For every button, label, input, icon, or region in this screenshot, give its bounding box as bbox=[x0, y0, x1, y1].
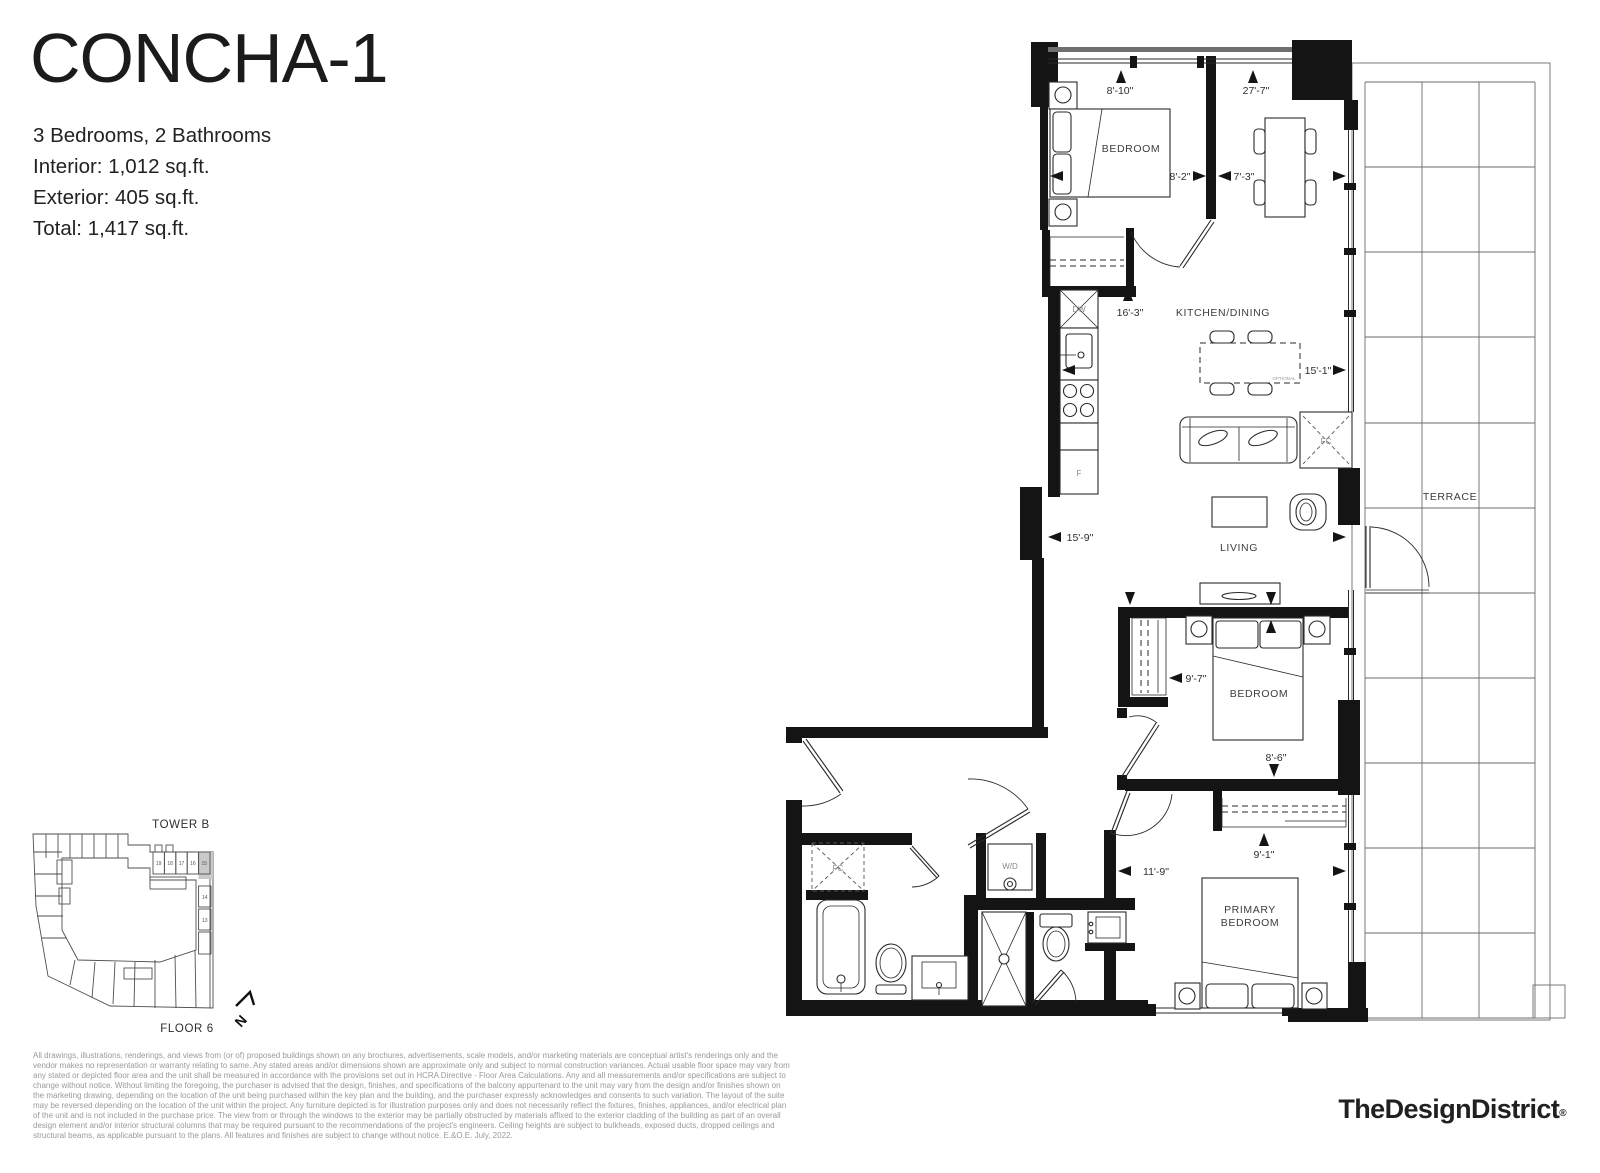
keyplan-building bbox=[33, 834, 213, 1008]
unit-19: 19 bbox=[156, 861, 162, 867]
spec-bed-bath: 3 Bedrooms, 2 Bathrooms bbox=[33, 120, 271, 151]
north-label: N bbox=[231, 1012, 250, 1030]
fc-living-label: FC bbox=[1321, 437, 1332, 446]
kitchen-dining-label: KITCHEN/DINING bbox=[1176, 307, 1270, 319]
primary-bedroom-label-2: BEDROOM bbox=[1221, 917, 1279, 929]
living-furniture: FC bbox=[1180, 412, 1352, 604]
terrace-label: TERRACE bbox=[1423, 491, 1477, 503]
unit-16: 16 bbox=[190, 861, 196, 867]
brand-logo: TheDesignDistrict® bbox=[1338, 1094, 1566, 1125]
living-label: LIVING bbox=[1220, 542, 1258, 554]
floorplan-page: CONCHA-1 3 Bedrooms, 2 Bathrooms Interio… bbox=[0, 0, 1600, 1173]
spec-exterior: Exterior: 405 sq.ft. bbox=[33, 182, 271, 213]
dim-living-w: 15'-9" bbox=[1067, 532, 1094, 544]
washer-dryer-label: W/D bbox=[1002, 862, 1018, 871]
dining-table bbox=[1254, 118, 1316, 217]
optional-table: OPTIONAL bbox=[1200, 331, 1300, 395]
dim-bedroom-top-w: 8'-10" bbox=[1107, 85, 1134, 97]
unit-14: 14 bbox=[202, 895, 208, 901]
bedroom-mid-furniture bbox=[1132, 616, 1330, 740]
dim-primary-w: 11'-9" bbox=[1143, 866, 1169, 878]
bedroom-top-label: BEDROOM bbox=[1102, 143, 1160, 155]
keyplan-units: 19 18 17 16 15 14 13 bbox=[153, 852, 213, 954]
terrace: TERRACE bbox=[1352, 63, 1565, 1020]
fridge-label: F bbox=[1077, 469, 1082, 478]
dim-bedroom-mid-d: 8'-6" bbox=[1266, 752, 1287, 764]
spec-interior: Interior: 1,012 sq.ft. bbox=[33, 151, 271, 182]
floor-plan: TERRACE bbox=[770, 20, 1570, 1030]
bedroom-top-furniture bbox=[1049, 82, 1170, 286]
bedroom-mid-label: BEDROOM bbox=[1230, 688, 1288, 700]
dim-bedroom-mid-w: 9'-7" bbox=[1186, 673, 1207, 685]
unit-17: 17 bbox=[179, 861, 185, 867]
spec-total: Total: 1,417 sq.ft. bbox=[33, 213, 271, 244]
primary-bedroom-label-1: PRIMARY bbox=[1224, 904, 1276, 916]
north-arrow-icon: N bbox=[231, 992, 254, 1030]
unit-15: 15 bbox=[202, 861, 208, 867]
legal-disclaimer: All drawings, illustrations, renderings,… bbox=[33, 1051, 790, 1141]
unit-18: 18 bbox=[167, 861, 173, 867]
dim-bedroom-top-d: 8'-2" bbox=[1170, 171, 1191, 183]
unit-title: CONCHA-1 bbox=[30, 18, 388, 98]
registered-mark: ® bbox=[1559, 1108, 1566, 1119]
dim-dining-w: 7'-3" bbox=[1234, 171, 1255, 183]
dishwasher-label: DW bbox=[1072, 305, 1086, 314]
unit-13: 13 bbox=[202, 918, 208, 924]
unit-specs: 3 Bedrooms, 2 Bathrooms Interior: 1,012 … bbox=[33, 120, 271, 244]
dim-kitchen-dining-w: 15'-1" bbox=[1305, 365, 1332, 377]
key-plan: TOWER B 19 18 17 16 15 bbox=[20, 800, 280, 1045]
fc-hall-label: FC bbox=[833, 864, 844, 873]
tower-label: TOWER B bbox=[152, 819, 210, 831]
dim-primary-d: 9'-1" bbox=[1254, 849, 1275, 861]
floor-label: FLOOR 6 bbox=[160, 1023, 213, 1035]
dim-overall-len: 27'-7" bbox=[1243, 85, 1270, 97]
brand-logo-text: TheDesignDistrict bbox=[1338, 1094, 1559, 1124]
kitchen-fixtures: DW F bbox=[1060, 290, 1098, 494]
optional-label: OPTIONAL bbox=[1272, 376, 1296, 381]
dim-kitchen-len: 16'-3" bbox=[1117, 307, 1144, 319]
